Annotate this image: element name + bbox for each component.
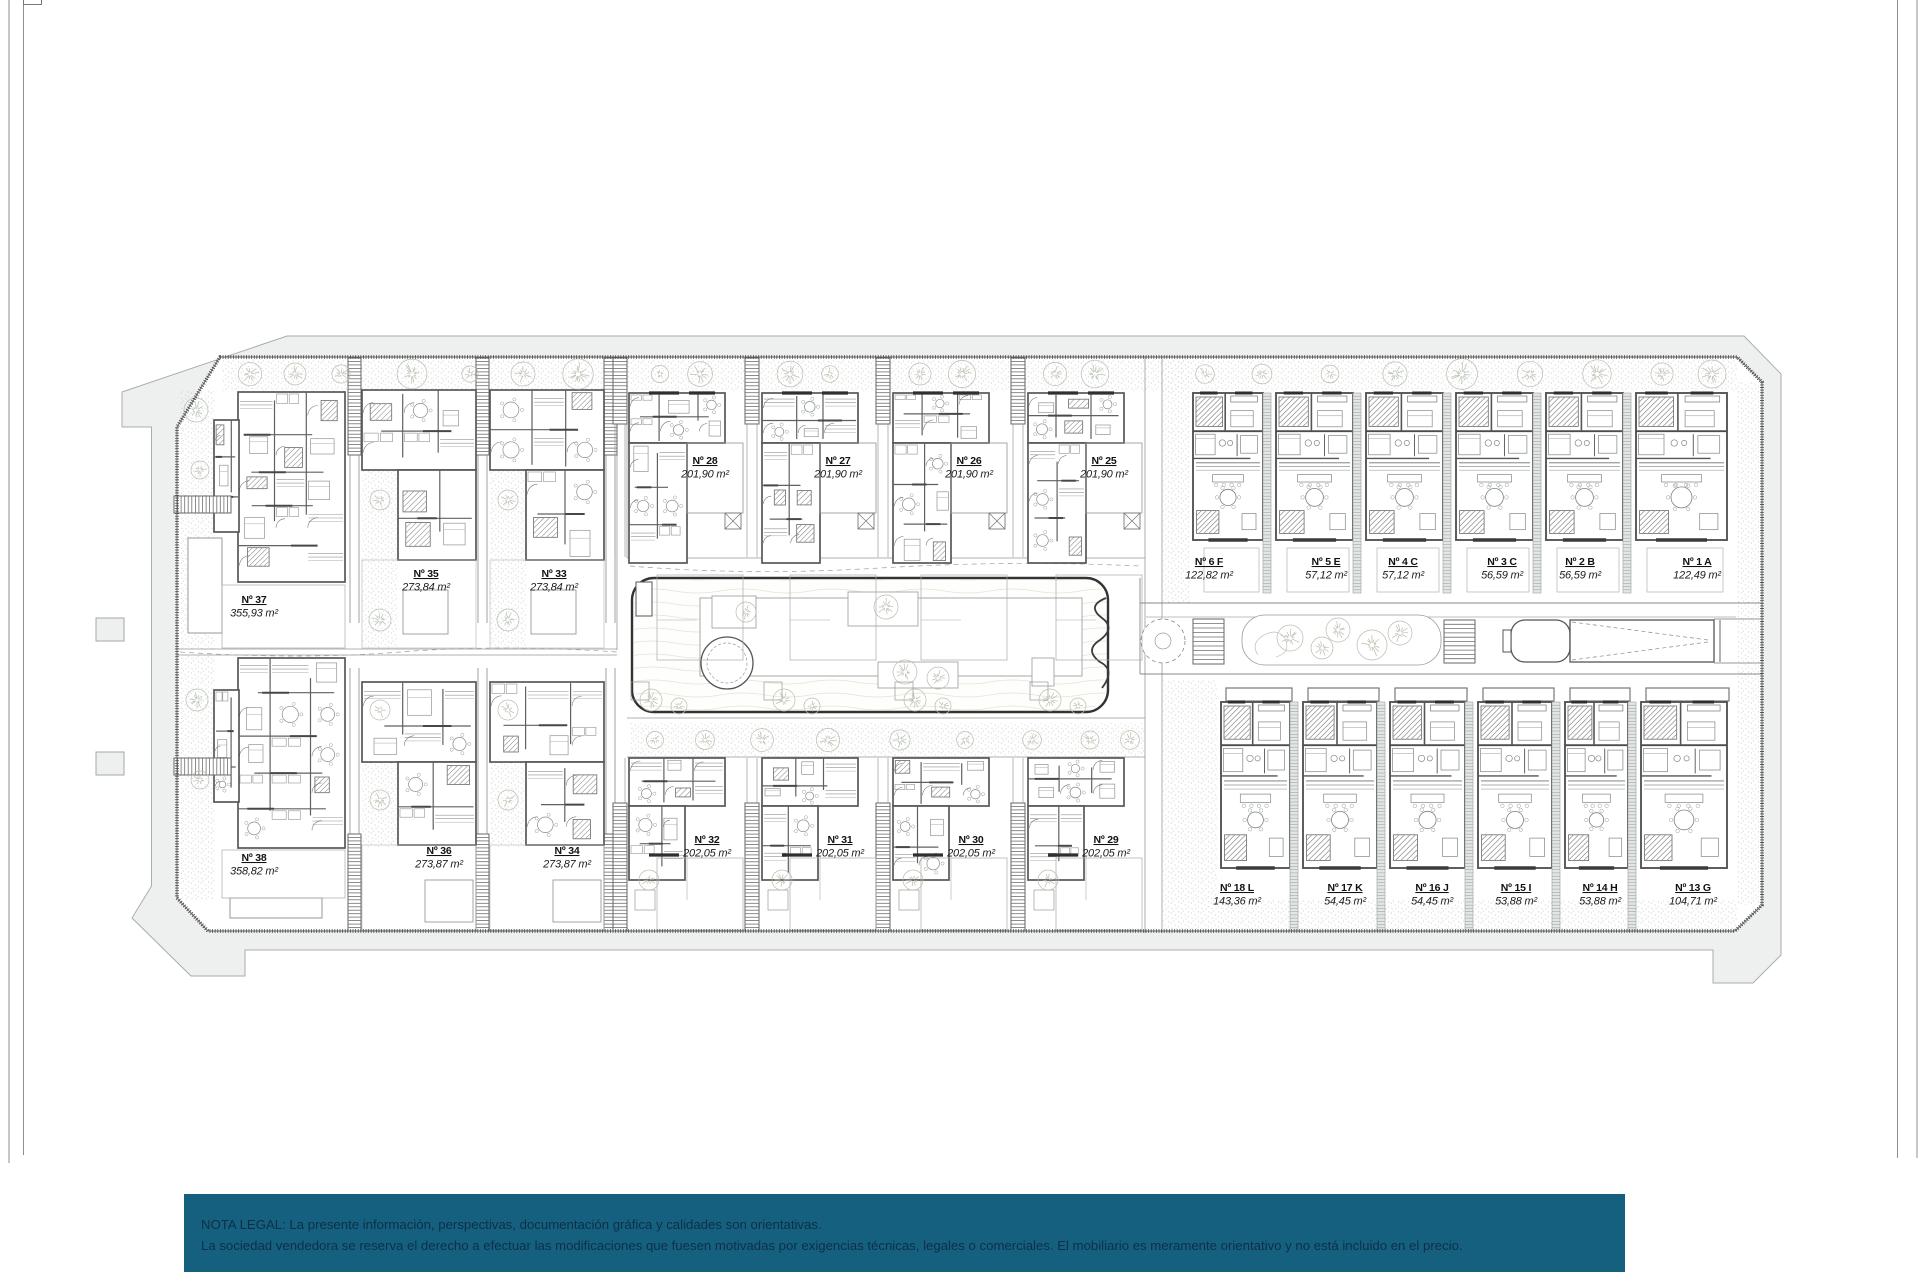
svg-text:Nº 3 C: Nº 3 C [1487, 556, 1517, 568]
svg-text:202,05 m²: 202,05 m² [946, 848, 995, 860]
svg-text:Nº 31: Nº 31 [827, 834, 852, 846]
svg-text:202,05 m²: 202,05 m² [682, 848, 731, 860]
svg-text:Nº 27: Nº 27 [825, 455, 850, 467]
svg-text:Nº 38: Nº 38 [241, 852, 266, 864]
svg-text:Nº 6 F: Nº 6 F [1195, 556, 1224, 568]
svg-text:Nº 26: Nº 26 [956, 455, 981, 467]
svg-text:56,59 m²: 56,59 m² [1559, 570, 1601, 582]
svg-text:Nº 5 E: Nº 5 E [1312, 556, 1341, 568]
svg-text:143,36 m²: 143,36 m² [1213, 896, 1261, 908]
svg-text:273,87 m²: 273,87 m² [542, 859, 591, 871]
svg-text:Nº 34: Nº 34 [554, 845, 579, 857]
svg-text:54,45 m²: 54,45 m² [1411, 896, 1453, 908]
svg-text:201,90 m²: 201,90 m² [813, 469, 862, 481]
svg-text:Nº 25: Nº 25 [1091, 455, 1116, 467]
svg-text:Nº 35: Nº 35 [413, 568, 438, 580]
svg-text:56,59 m²: 56,59 m² [1481, 570, 1523, 582]
svg-text:57,12 m²: 57,12 m² [1305, 570, 1347, 582]
svg-text:Nº 17 K: Nº 17 K [1327, 882, 1363, 894]
svg-text:Nº 4 C: Nº 4 C [1388, 556, 1418, 568]
svg-text:Nº 28: Nº 28 [692, 455, 717, 467]
svg-text:201,90 m²: 201,90 m² [944, 469, 993, 481]
svg-text:201,90 m²: 201,90 m² [680, 469, 729, 481]
svg-text:358,82 m²: 358,82 m² [230, 866, 278, 878]
svg-text:La sociedad vendedora se reser: La sociedad vendedora se reserva el dere… [201, 1238, 1463, 1253]
svg-text:122,82 m²: 122,82 m² [1185, 570, 1233, 582]
svg-text:273,84 m²: 273,84 m² [529, 582, 578, 594]
svg-text:Nº 16 J: Nº 16 J [1415, 882, 1449, 894]
svg-text:Nº 33: Nº 33 [541, 568, 566, 580]
svg-text:54,45 m²: 54,45 m² [1324, 896, 1366, 908]
svg-text:Nº 30: Nº 30 [958, 834, 983, 846]
svg-text:202,05 m²: 202,05 m² [1081, 848, 1130, 860]
svg-text:57,12 m²: 57,12 m² [1382, 570, 1424, 582]
svg-text:Nº 15 I: Nº 15 I [1501, 882, 1532, 894]
svg-text:104,71 m²: 104,71 m² [1669, 896, 1717, 908]
svg-text:Nº 18 L: Nº 18 L [1220, 882, 1255, 894]
svg-text:Nº 2 B: Nº 2 B [1565, 556, 1595, 568]
svg-text:355,93 m²: 355,93 m² [230, 608, 278, 620]
svg-text:273,84 m²: 273,84 m² [401, 582, 450, 594]
svg-text:Nº 1 A: Nº 1 A [1682, 556, 1712, 568]
svg-text:Nº 13 G: Nº 13 G [1675, 882, 1711, 894]
svg-text:Nº 36: Nº 36 [426, 845, 451, 857]
svg-text:201,90 m²: 201,90 m² [1079, 469, 1128, 481]
svg-text:Nº 29: Nº 29 [1093, 834, 1118, 846]
svg-text:Nº 37: Nº 37 [241, 594, 266, 606]
svg-text:202,05 m²: 202,05 m² [815, 848, 864, 860]
svg-text:Nº 14 H: Nº 14 H [1582, 882, 1617, 894]
svg-text:53,88 m²: 53,88 m² [1495, 896, 1537, 908]
svg-text:53,88 m²: 53,88 m² [1579, 896, 1621, 908]
svg-text:273,87 m²: 273,87 m² [414, 859, 463, 871]
svg-text:Nº 32: Nº 32 [694, 834, 719, 846]
svg-text:122,49 m²: 122,49 m² [1673, 570, 1721, 582]
svg-text:NOTA LEGAL: La presente inform: NOTA LEGAL: La presente información, per… [201, 1217, 822, 1232]
